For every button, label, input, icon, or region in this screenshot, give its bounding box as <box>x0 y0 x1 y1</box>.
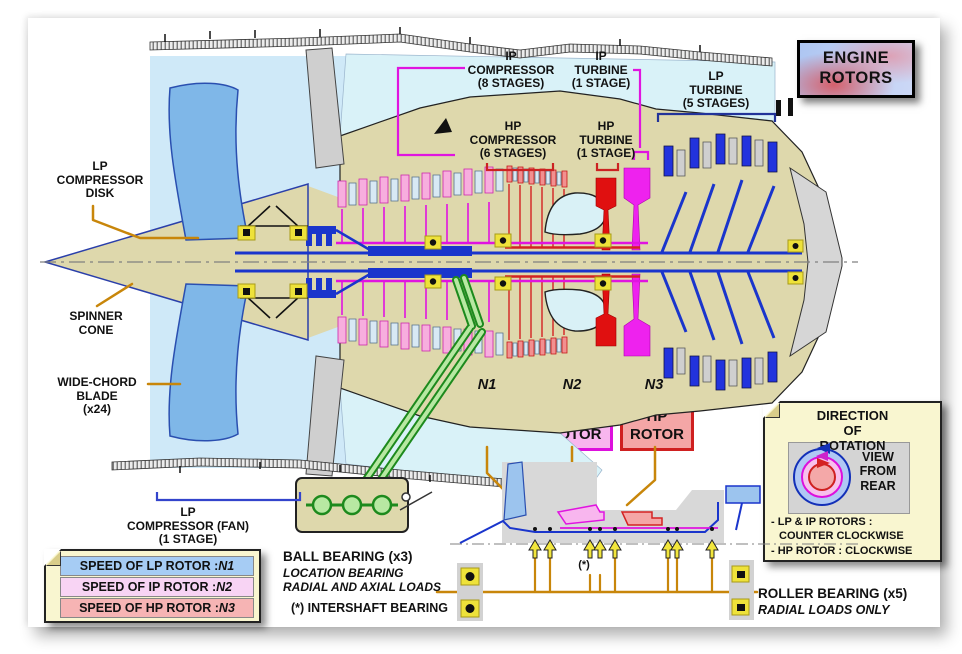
lp-turbine-label: LP TURBINE (5 STAGES) <box>683 70 749 111</box>
roller-bearing-subtitle: RADIAL LOADS ONLY <box>758 603 889 617</box>
direction-of-rotation-box: DIRECTION OF ROTATION VIEW FROM REAR - L… <box>763 401 942 562</box>
spinner-cone-label: SPINNER CONE <box>69 310 122 337</box>
page-title: ENGINE ROTORS <box>797 40 915 98</box>
hp-turbine-label: HP TURBINE (1 STAGE) <box>577 120 635 161</box>
speed-hp-row: SPEED OF HP ROTOR : N3 <box>60 598 254 618</box>
lp-compressor-fan-label: LP COMPRESSOR (FAN) (1 STAGE) <box>127 506 249 547</box>
ball-bearing-title: BALL BEARING (x3) <box>283 549 413 564</box>
rotation-note-hp: - HP ROTOR : CLOCKWISE <box>771 545 912 557</box>
lp-compressor-disk-label: LP COMPRESSOR DISK <box>57 160 144 201</box>
speed-lp-text: SPEED OF LP ROTOR : <box>80 559 218 573</box>
n3-tag: N3 <box>645 377 664 393</box>
speed-hp-n: N3 <box>219 601 235 615</box>
lp-rotor-box: LP ROTOR <box>452 400 528 451</box>
direction-title: DIRECTION OF ROTATION <box>809 409 897 453</box>
wide-chord-blade-label: WIDE-CHORD BLADE (x24) <box>57 376 136 417</box>
hp-rotor-box: HP ROTOR <box>620 400 694 451</box>
speed-ip-n: N2 <box>216 580 232 594</box>
rotation-note-lp-ip: - LP & IP ROTORS : <box>771 516 872 528</box>
speed-ip-row: SPEED OF IP ROTOR : N2 <box>60 577 254 597</box>
speed-legend-box: SPEED OF LP ROTOR : N1 SPEED OF IP ROTOR… <box>44 549 261 623</box>
view-from-rear-label: VIEW FROM REAR <box>860 450 897 493</box>
ip-turbine-label: IP TURBINE (1 STAGE) <box>572 50 630 91</box>
roller-bearing-title: ROLLER BEARING (x5) <box>758 586 907 601</box>
speed-lp-n: N1 <box>218 559 234 573</box>
intershaft-bearing-note: (*) INTERSHAFT BEARING <box>291 601 448 615</box>
screenshot-root: { "colors": { "lp_rotor_blue": "#1a35cc"… <box>0 0 962 654</box>
speed-lp-row: SPEED OF LP ROTOR : N1 <box>60 556 254 576</box>
ip-rotor-box: IP ROTOR <box>536 400 613 451</box>
speed-hp-text: SPEED OF HP ROTOR : <box>79 601 219 615</box>
intershaft-mark: (*) <box>578 559 590 572</box>
hp-compressor-label: HP COMPRESSOR (6 STAGES) <box>470 120 557 161</box>
speed-ip-text: SPEED OF IP ROTOR : <box>82 580 216 594</box>
n1-tag: N1 <box>478 377 497 393</box>
n2-tag: N2 <box>563 377 582 393</box>
rotation-note-lp-ip-2: COUNTER CLOCKWISE <box>779 530 904 542</box>
ball-bearing-subtitle: LOCATION BEARING RADIAL AND AXIAL LOADS <box>283 567 441 594</box>
ip-compressor-label: IP COMPRESSOR (8 STAGES) <box>468 50 555 91</box>
